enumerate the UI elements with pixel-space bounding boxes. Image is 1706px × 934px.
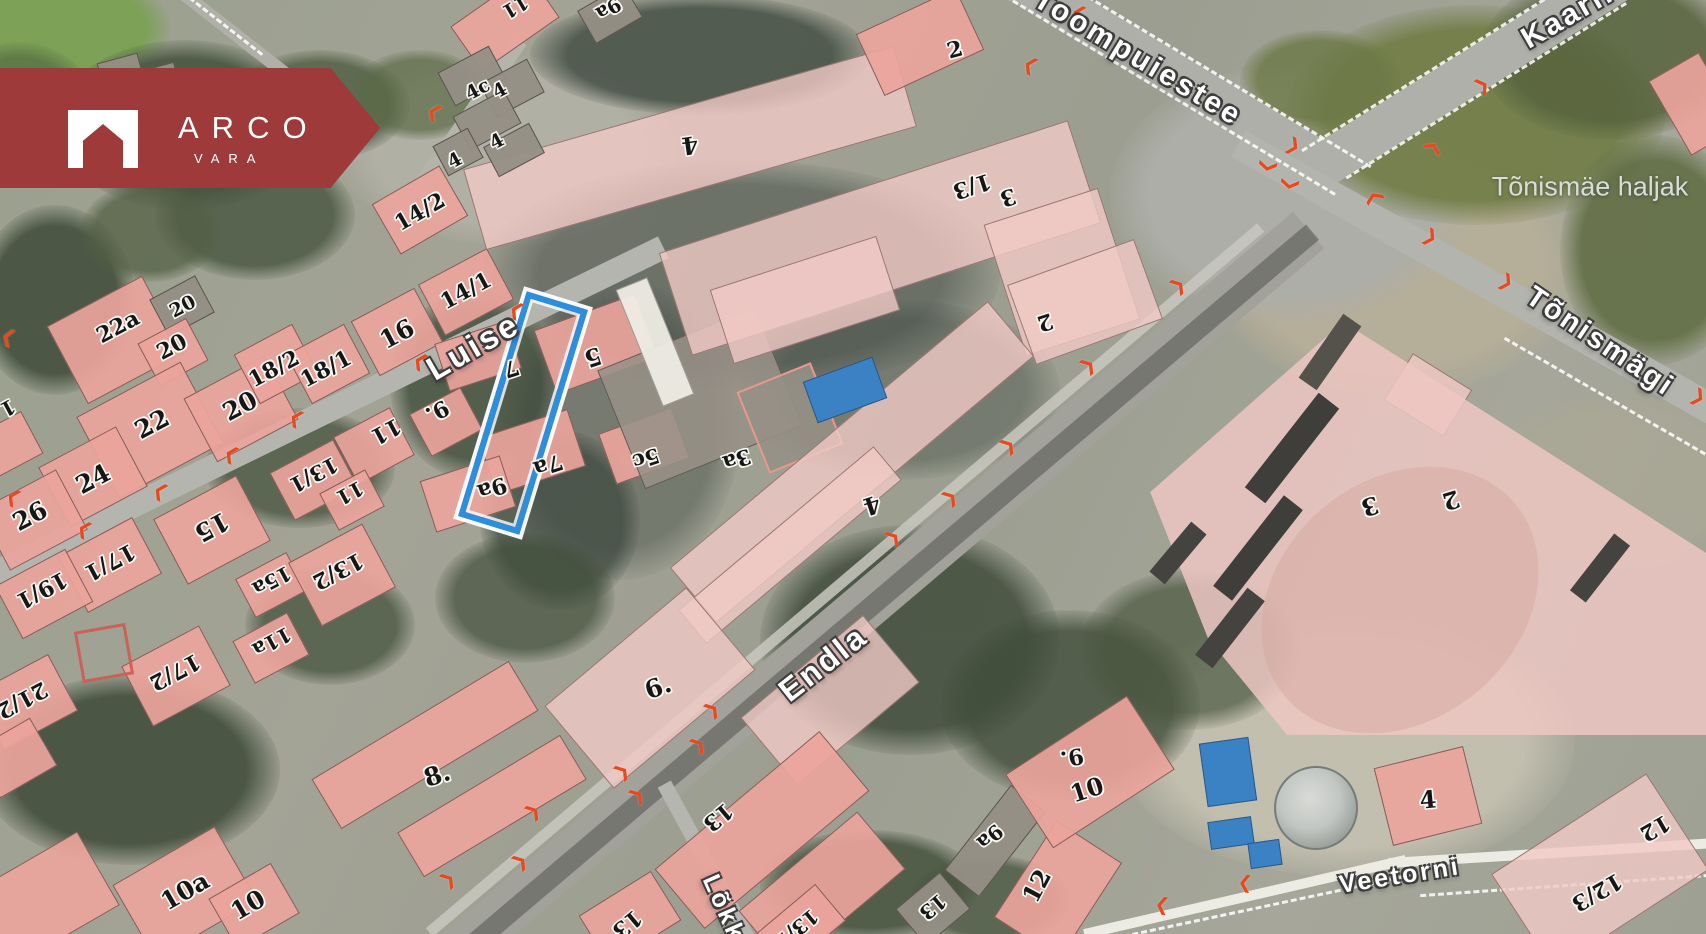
direction-chevron-icon: ❯ <box>1019 55 1041 78</box>
house-glyph <box>83 124 123 168</box>
house-number-label: 4 <box>680 132 700 158</box>
map-screenshot: ❯❯❯❯❯❯❯❯❯❯❯❯❯❯❯❯❯❯❯❯❯❯❯❯❯❯❯❯❯❯❯❯❯❯22a202… <box>0 0 1706 934</box>
house-number-label: 9. <box>1058 744 1085 770</box>
park-area-label: Tõnismäe haljak <box>1492 174 1689 201</box>
house-number-label: 1 <box>0 396 19 420</box>
brand-house-icon <box>68 110 138 168</box>
blue-container <box>1199 737 1257 807</box>
terrain-patch <box>80 182 220 282</box>
logo-banner: ARCO VARA <box>0 68 380 188</box>
brand-name: ARCO <box>178 112 320 143</box>
blue-container <box>1247 839 1282 869</box>
building <box>74 623 134 683</box>
brand-subtitle: VARA <box>194 152 264 165</box>
direction-chevron-icon: ❯ <box>436 868 459 891</box>
street-label-toompuiestee: Toompuiestee <box>1029 0 1248 132</box>
direction-chevron-icon: ❯ <box>1153 896 1170 916</box>
direction-chevron-icon: ❯ <box>1280 175 1300 193</box>
water-tower-dome <box>1274 766 1358 850</box>
house-number-label: 4 <box>1419 787 1438 812</box>
direction-chevron-icon: ❯ <box>1258 157 1278 175</box>
direction-chevron-icon: ❯ <box>1237 874 1254 893</box>
house-number-label: 3a <box>720 446 753 475</box>
